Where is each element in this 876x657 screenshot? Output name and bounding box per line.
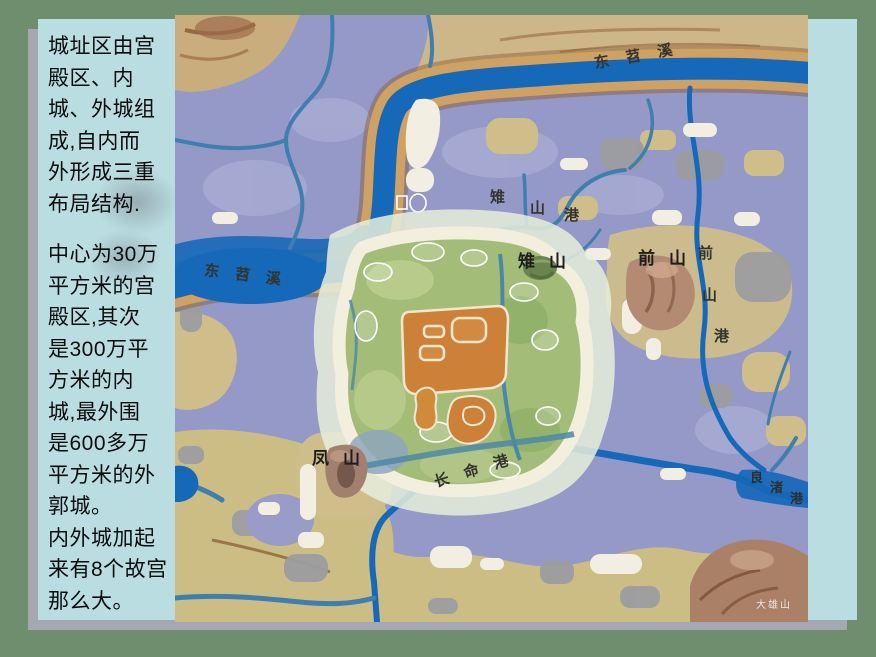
label-zhishangang-2: 山 xyxy=(530,200,545,217)
label-fengshan: 凤山 xyxy=(312,449,374,468)
label-zhishangang-3: 港 xyxy=(564,206,580,224)
site-map: 雉山 前山 凤山 东苕溪 东苕溪 长命港 前 山 港 雉 山 港 良 渚 港 大… xyxy=(175,15,808,622)
label-daxiongshan: 大雄山 xyxy=(756,598,792,611)
label-qianshan: 前山 xyxy=(638,248,700,268)
paragraph-dimensions: 中心为30万 平方米的宫 殿区,其次 是300万平 方米的内 城,最外围 是60… xyxy=(48,239,176,617)
label-qianshangang-2: 山 xyxy=(702,287,717,304)
label-zhishangang-1: 雉 xyxy=(490,188,505,206)
terrain-map-svg: 雉山 前山 凤山 东苕溪 东苕溪 长命港 前 山 港 雉 山 港 良 渚 港 大… xyxy=(175,15,808,622)
label-zhishan: 雉山 xyxy=(518,251,580,271)
paragraph-structure: 城址区由宫 殿区、内 城、外城组 成,自内而 外形成三重 布局结构. xyxy=(48,31,176,220)
label-liangzhugang-2: 渚 xyxy=(770,480,783,495)
label-qianshangang-1: 前 xyxy=(698,244,713,262)
palace-zone xyxy=(402,306,508,444)
content-panel: 城址区由宫 殿区、内 城、外城组 成,自内而 外形成三重 布局结构. 中心为30… xyxy=(38,19,857,620)
label-liangzhugang-3: 港 xyxy=(790,491,804,506)
slide-canvas: 城址区由宫 殿区、内 城、外城组 成,自内而 外形成三重 布局结构. 中心为30… xyxy=(0,0,876,657)
text-column: 城址区由宫 殿区、内 城、外城组 成,自内而 外形成三重 布局结构. 中心为30… xyxy=(48,31,176,636)
label-liangzhugang-1: 良 xyxy=(750,470,763,485)
label-qianshangang-3: 港 xyxy=(714,327,730,345)
